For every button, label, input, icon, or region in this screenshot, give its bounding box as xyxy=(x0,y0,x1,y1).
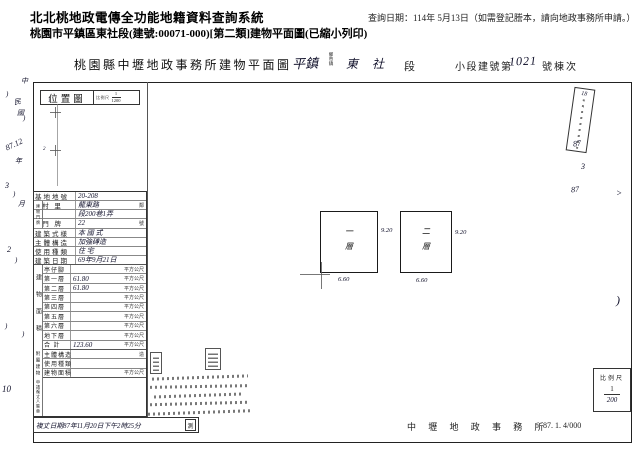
approver-seal-box xyxy=(150,352,162,374)
area-rows: 亭仔腳 平方公尺 第一層 61.80 平方公尺 第二層 61.80 平方公尺 第… xyxy=(43,265,146,350)
area-unit: 平方公尺 xyxy=(124,285,145,292)
area-unit: 平方公尺 xyxy=(124,322,145,329)
survey-seal: 測 xyxy=(185,419,196,431)
annex-group-label: 附屬建物 xyxy=(34,350,43,378)
survey-date-box: 複丈日期87年11月20日下午2時25分 測 xyxy=(33,417,199,433)
township-handwritten: 平鎮 xyxy=(292,53,319,73)
annex-row: 主體構造 造 xyxy=(43,350,146,359)
margin-mark: ) xyxy=(23,114,25,122)
area-unit: 平方公尺 xyxy=(124,341,145,348)
lot-suffix: 號棟次 xyxy=(542,58,578,73)
lot-number-handwritten: 1021 xyxy=(509,54,538,70)
plan-axis-tick xyxy=(321,262,322,289)
area-row: 第一層 61.80 平方公尺 xyxy=(43,274,146,283)
margin-mark: ) xyxy=(22,330,24,338)
doc-title: 桃園縣中壢地政事務所建物平面圖 xyxy=(74,56,292,73)
floor-2-label: 二層 xyxy=(401,212,451,272)
row-unit: 號 xyxy=(139,220,145,227)
floor-area-value: 123.60 xyxy=(71,341,124,349)
floor-label: 第二層 xyxy=(44,284,71,292)
row-label: 基地地號 xyxy=(35,192,76,200)
approver-seal-box xyxy=(205,348,221,370)
applicant-group-label: 申請複丈人簽章 xyxy=(34,378,43,416)
document-subtitle: 桃園市平鎮區東社段(建號:00071-000)[第二類]建物平面圖(已縮小列印) xyxy=(30,25,367,41)
margin-mark: 年 xyxy=(15,156,22,166)
map-cross-tick xyxy=(55,107,56,118)
table-row: 基地地號 20-208 xyxy=(34,192,146,201)
annex-unit: 平方公尺 xyxy=(124,369,145,376)
map-sketch-line xyxy=(57,104,58,186)
township-unit-stack: 鄉市鎮 xyxy=(327,52,334,69)
floor-label: 第一層 xyxy=(44,274,71,282)
table-row: 村 里 龍東路 鄰 xyxy=(34,201,146,210)
table-row: 門 牌 22 號 xyxy=(34,219,146,228)
plan-axis-tick xyxy=(300,274,330,275)
location-map-label: 位置圖 xyxy=(41,91,93,105)
margin-mark: ) xyxy=(6,90,8,98)
annex-row: 使用種類 xyxy=(43,359,146,368)
form-code: 87. 1. 4/000 xyxy=(543,421,581,430)
area-group-label: 建物面積 xyxy=(34,265,43,350)
row-value: 住 宅 xyxy=(76,247,144,256)
row-value: 加強磚造 xyxy=(76,238,144,247)
annex-unit: 造 xyxy=(139,351,145,358)
floor-label: 亭仔腳 xyxy=(44,265,71,273)
location-map-header: 位置圖 比例尺 1 1200 xyxy=(40,90,140,105)
floor-label: 第五層 xyxy=(44,312,71,320)
row-label: 主體構造 xyxy=(35,238,76,246)
row-value: 本 國 式 xyxy=(76,229,144,238)
area-unit: 平方公尺 xyxy=(124,266,145,273)
area-row: 第四層 平方公尺 xyxy=(43,303,146,312)
margin-mark: 國 xyxy=(17,108,24,118)
floor-1-width-dim: 6.60 xyxy=(338,276,349,283)
area-row: 第三層 平方公尺 xyxy=(43,293,146,302)
row-value: 龍東路 xyxy=(76,201,139,210)
query-system-page: 北北桃地政電傳全功能地籍資料查詢系統 查詢日期：114年 5月13日（如需登記謄… xyxy=(0,0,640,452)
plan-scale-label: 比例尺 xyxy=(600,373,624,382)
lot-prefix: 小段建號第 xyxy=(455,58,513,73)
door-group-label: 建物門牌 xyxy=(34,201,43,228)
area-row: 地下層 平方公尺 xyxy=(43,331,146,340)
plan-scale-box: 比例尺 1 200 xyxy=(593,368,631,412)
margin-mark: 87.12 xyxy=(4,137,24,153)
area-unit: 平方公尺 xyxy=(124,303,145,310)
floor-1-depth-dim: 9.20 xyxy=(381,227,392,234)
floor-area-value: 61.80 xyxy=(71,275,124,283)
floor-2-width-dim: 6.60 xyxy=(416,277,427,284)
map-cross-tick xyxy=(55,145,56,156)
scale-fraction: 1 1200 xyxy=(112,92,121,103)
area-row: 亭仔腳 平方公尺 xyxy=(43,265,146,274)
margin-mark: ) xyxy=(5,322,7,330)
margin-mark: ) xyxy=(15,256,17,264)
row-label: 使用種類 xyxy=(35,247,76,255)
annex-label: 主體構造 xyxy=(44,350,71,358)
seal-squiggle xyxy=(208,351,218,367)
row-label: 建築式樣 xyxy=(35,229,76,237)
floor-1-label: 一層 xyxy=(321,212,377,272)
floor-label: 地下層 xyxy=(44,331,71,339)
table-row: 建築日期 69年9月21日 xyxy=(34,256,146,265)
area-row: 第六層 平方公尺 xyxy=(43,322,146,331)
row-value: 69年9月21日 xyxy=(76,256,144,265)
row-value: 22 xyxy=(76,219,139,227)
row-value: 20-208 xyxy=(76,192,144,200)
floor-plan-rect-2: 二層 xyxy=(400,211,452,273)
query-date: 查詢日期：114年 5月13日（如需登記謄本，請向地政事務所申請。） xyxy=(368,11,635,24)
annex-rows: 主體構造 造 使用種類 建物面積 平方公尺 xyxy=(43,350,146,378)
margin-mark: 民 xyxy=(13,96,22,107)
floor-area-value: 61.80 xyxy=(71,284,124,292)
plan-scale-num: 1 xyxy=(610,385,614,393)
area-unit: 平方公尺 xyxy=(124,313,145,320)
table-row: 主體構造 加強磚造 xyxy=(34,238,146,247)
table-row: 建築式樣 本 國 式 xyxy=(34,229,146,238)
area-unit: 平方公尺 xyxy=(124,275,145,282)
floor-label: 第四層 xyxy=(44,303,71,311)
floor-plan-rect-1: 一層 xyxy=(320,211,378,273)
area-row: 第五層 平方公尺 xyxy=(43,312,146,321)
row-value: 段200巷1弄 xyxy=(76,210,144,219)
main-rows: 基地地號 20-208 村 里 龍東路 鄰 段200巷1弄 門 牌 22 號 xyxy=(34,192,146,265)
scale-label: 比例尺 xyxy=(96,95,110,101)
floor-label: 第三層 xyxy=(44,293,71,301)
office-footer: 中 壢 地 政 事 務 所 xyxy=(407,420,549,433)
margin-mark: 10 xyxy=(2,384,11,394)
annex-label: 建物面積 xyxy=(44,369,71,377)
margin-mark: 月 xyxy=(18,199,25,209)
row-label: 建築日期 xyxy=(35,256,76,264)
area-row: 合 計 123.60 平方公尺 xyxy=(43,341,146,350)
plan-scale-den: 200 xyxy=(607,396,618,404)
annex-row: 建物面積 平方公尺 xyxy=(43,369,146,378)
area-row: 第二層 61.80 平方公尺 xyxy=(43,284,146,293)
system-title: 北北桃地政電傳全功能地籍資料查詢系統 xyxy=(30,7,264,26)
margin-mark: ) xyxy=(13,190,15,198)
row-unit: 鄰 xyxy=(139,202,145,209)
section-suffix: 段 xyxy=(404,58,415,74)
floor-label: 合 計 xyxy=(44,341,71,349)
table-row: 使用種類 住 宅 xyxy=(34,247,146,256)
table-row: 段200巷1弄 xyxy=(34,210,146,219)
location-map-scale: 比例尺 1 1200 xyxy=(94,92,121,103)
margin-mark: 2 xyxy=(7,245,11,254)
survey-date-text: 複丈日期87年11月20日下午2時25分 xyxy=(36,420,141,430)
annex-label: 使用種類 xyxy=(44,359,71,367)
margin-mark: 3 xyxy=(5,181,9,190)
seal-squiggle xyxy=(153,355,159,371)
floor-label: 第六層 xyxy=(44,322,71,330)
floor-2-depth-dim: 9.20 xyxy=(455,229,466,236)
area-unit: 平方公尺 xyxy=(124,332,145,339)
annotation-number: 18 xyxy=(581,91,588,98)
area-unit: 平方公尺 xyxy=(124,294,145,301)
annotation-squiggle xyxy=(575,99,584,149)
margin-mark: 中 xyxy=(21,76,28,86)
column-divider xyxy=(147,82,148,417)
section-handwritten: 東社 xyxy=(346,55,398,72)
